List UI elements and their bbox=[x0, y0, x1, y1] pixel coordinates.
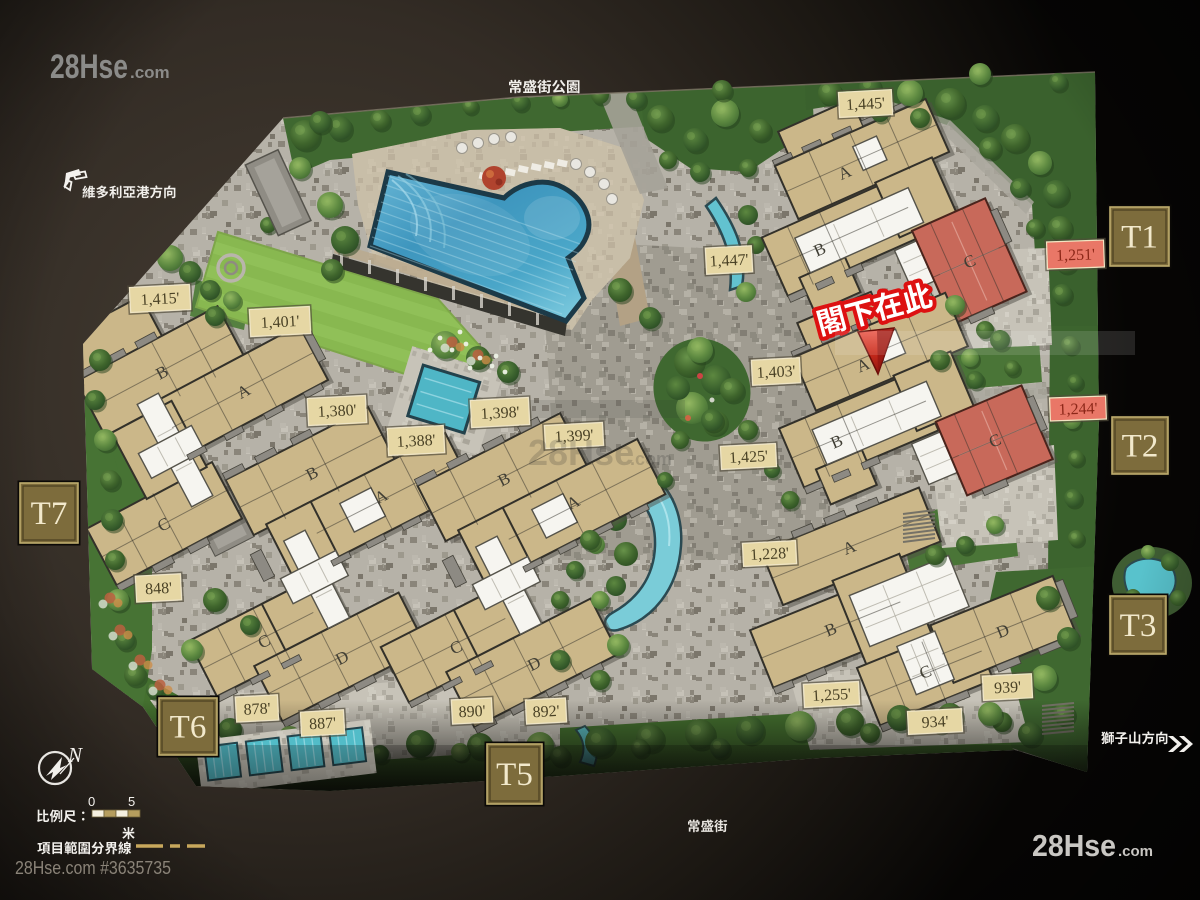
svg-text:939': 939' bbox=[994, 679, 1022, 697]
svg-text:.com: .com bbox=[1118, 843, 1153, 860]
svg-text:28Hse: 28Hse bbox=[50, 48, 128, 86]
svg-text:28Hse: 28Hse bbox=[1032, 828, 1116, 863]
svg-text:5: 5 bbox=[128, 794, 135, 809]
svg-text:887': 887' bbox=[309, 715, 337, 733]
svg-text:890': 890' bbox=[458, 703, 486, 721]
svg-text:1,255': 1,255' bbox=[812, 686, 852, 705]
svg-text:1,251': 1,251' bbox=[1056, 246, 1096, 264]
svg-text:1,388': 1,388' bbox=[396, 432, 436, 451]
svg-text:T6: T6 bbox=[170, 710, 207, 746]
svg-text:1,445': 1,445' bbox=[846, 95, 886, 114]
svg-text:848': 848' bbox=[145, 580, 173, 598]
svg-text:1,403': 1,403' bbox=[756, 363, 796, 382]
svg-text:28Hse.com #3635735: 28Hse.com #3635735 bbox=[15, 858, 171, 878]
svg-text:0: 0 bbox=[88, 794, 95, 809]
svg-text:T7: T7 bbox=[31, 496, 68, 532]
svg-text:1,244': 1,244' bbox=[1058, 400, 1098, 418]
svg-text:892': 892' bbox=[532, 703, 560, 721]
svg-text:28Hse: 28Hse bbox=[528, 432, 634, 473]
svg-text:1,398': 1,398' bbox=[480, 404, 520, 423]
svg-text:1,415': 1,415' bbox=[140, 290, 180, 309]
svg-text:T5: T5 bbox=[496, 757, 533, 793]
svg-text:.com: .com bbox=[130, 63, 170, 82]
svg-text:1,401': 1,401' bbox=[260, 313, 300, 332]
svg-text:934': 934' bbox=[921, 713, 949, 731]
svg-text:1,447': 1,447' bbox=[709, 251, 749, 270]
svg-text:T3: T3 bbox=[1120, 608, 1157, 644]
svg-text:1,425': 1,425' bbox=[729, 448, 769, 467]
svg-text:1,380': 1,380' bbox=[317, 402, 357, 421]
svg-text:.com: .com bbox=[630, 449, 672, 469]
svg-text:T2: T2 bbox=[1122, 429, 1159, 465]
svg-text:878': 878' bbox=[243, 700, 271, 718]
svg-text:T1: T1 bbox=[1121, 220, 1158, 256]
svg-text:1,228': 1,228' bbox=[750, 545, 790, 564]
